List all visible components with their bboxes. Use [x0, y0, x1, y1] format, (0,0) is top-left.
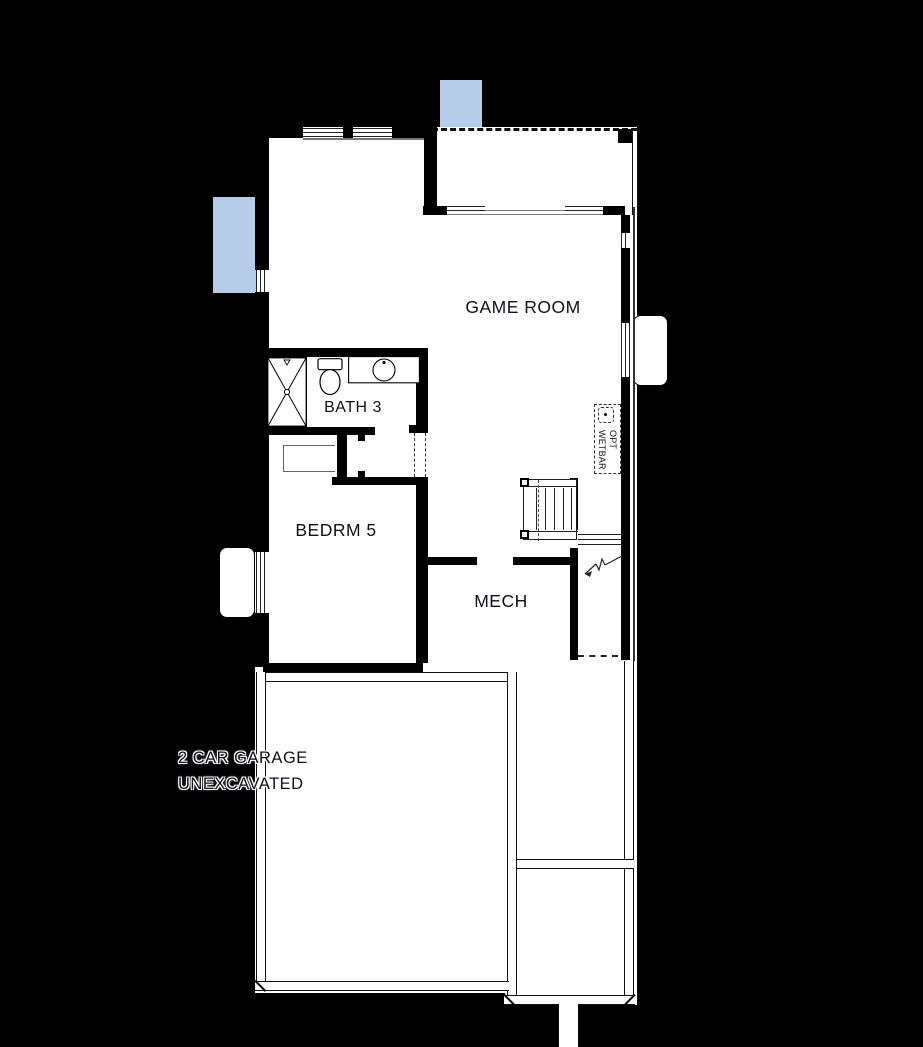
sink-icon	[348, 356, 420, 384]
garage-floor-area	[255, 672, 517, 993]
north-window-sill	[303, 138, 430, 140]
stair-newel-top	[520, 478, 529, 487]
stoop-east-wall	[624, 661, 634, 997]
stair-newel-bottom	[520, 530, 529, 539]
closet-shelf-line	[283, 445, 335, 472]
east-wall-seg2	[621, 248, 630, 323]
garage-east-wall	[507, 672, 517, 997]
garage-south-wall	[255, 981, 509, 991]
opening-above-dashes	[578, 655, 618, 657]
garage-west-wall	[256, 672, 266, 982]
bath-south-wall	[255, 427, 375, 435]
stair-landing-line2	[578, 539, 621, 540]
window-well-left-upper	[213, 197, 258, 293]
bath-door-jamb	[409, 425, 428, 433]
stair-landing-line1	[578, 534, 621, 535]
gameroom-window-2	[565, 206, 603, 214]
east-footing-line	[633, 207, 635, 661]
gameroom-label: GAME ROOM	[443, 297, 603, 318]
stoop-divider-wall	[517, 859, 634, 869]
stair-landing-line3	[578, 544, 621, 545]
deck-above-line	[432, 128, 637, 131]
egress-well-right	[633, 315, 668, 386]
west-wall-seg3	[255, 613, 269, 667]
east-wall-seg3	[621, 377, 630, 660]
mech-north-wall-seg1	[416, 557, 477, 565]
covered-area-west-wall	[424, 138, 437, 206]
stair-east-wall-seg2	[570, 548, 578, 660]
hall-west-wall-lower	[416, 477, 428, 663]
egress-well-left	[219, 547, 255, 618]
window-well-top	[440, 80, 482, 127]
closet-south-wall	[332, 477, 428, 485]
gameroom-window-sill	[447, 214, 603, 215]
bedroom-opening	[414, 433, 426, 477]
garage-label: 2 CAR GARAGE UNEXCAVATED	[178, 746, 308, 797]
bedrm5-label: BEDRM 5	[286, 520, 386, 541]
north-window-1	[303, 128, 343, 138]
chimney-column	[618, 129, 632, 143]
gameroom-window-wall-seg2	[603, 206, 625, 215]
gameroom-opening-line	[485, 210, 565, 211]
mech-label: MECH	[461, 591, 541, 612]
mech-north-wall-seg2	[513, 557, 578, 565]
east-window-small	[621, 233, 628, 248]
north-wall-seg2	[392, 127, 437, 138]
garage-north-wall	[257, 672, 517, 682]
stoop-floor-area	[505, 657, 637, 1005]
north-window-2	[353, 128, 392, 138]
bedroom-south-wall	[263, 663, 423, 672]
covered-area-right-wall	[632, 131, 638, 215]
shower-icon	[267, 357, 307, 427]
north-wall-mullion	[343, 127, 353, 138]
stoop-walk-stem-walls	[558, 1004, 579, 1047]
gameroom-window-wall-seg1	[423, 206, 447, 215]
gameroom-window-1	[447, 206, 485, 214]
toilet-icon	[316, 358, 344, 396]
stairs	[523, 479, 577, 540]
stair-direction-arrow	[578, 548, 624, 584]
basement-floor-plan: OPT WETBAR GAME ROOM BATH 3 BEDRM 5 MECH…	[0, 0, 923, 1047]
west-window-small	[256, 270, 268, 292]
north-wall-seg1	[255, 127, 303, 138]
west-wall-seg1	[255, 138, 269, 270]
bath3-label: BATH 3	[313, 399, 393, 417]
closet-jamb-top	[358, 435, 365, 441]
closet-divider-wall	[337, 435, 347, 477]
opt-wetbar-label: OPT WETBAR	[594, 430, 618, 474]
east-wall-seg1	[621, 215, 630, 233]
wetbar-sink-drain	[604, 413, 607, 416]
bedroom-egress-window	[256, 552, 268, 613]
